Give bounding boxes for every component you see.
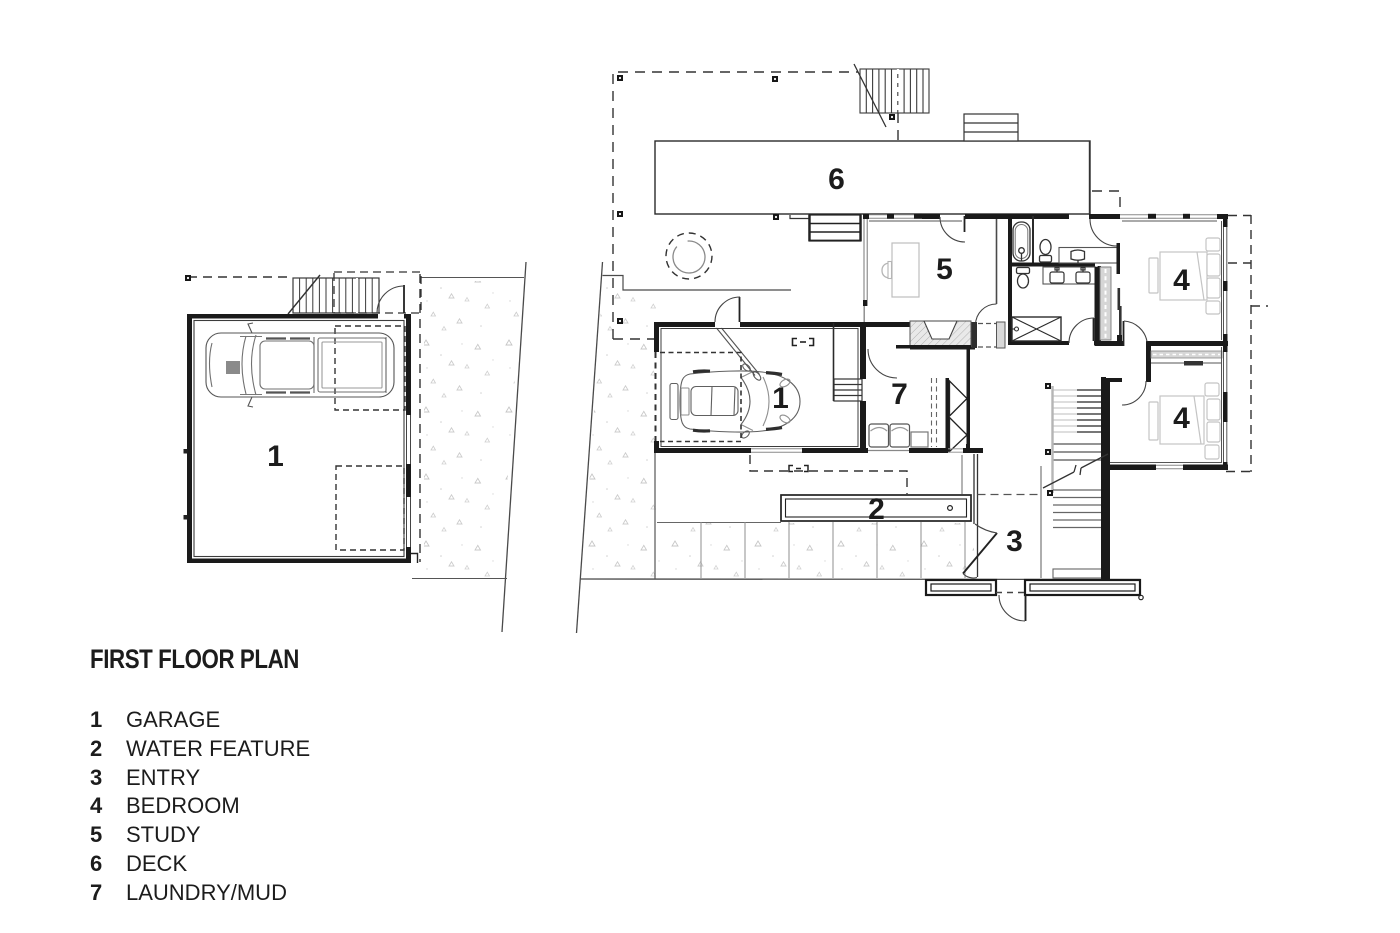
- svg-text:FIRST FLOOR PLAN: FIRST FLOOR PLAN: [90, 644, 299, 674]
- svg-text:6: 6: [828, 163, 844, 196]
- svg-text:2: 2: [868, 493, 884, 526]
- svg-text:6: 6: [90, 851, 102, 876]
- svg-text:1: 1: [772, 382, 788, 415]
- svg-text:DECK: DECK: [126, 851, 187, 876]
- svg-text:4: 4: [1173, 264, 1190, 297]
- svg-text:LAUNDRY/MUD: LAUNDRY/MUD: [126, 880, 287, 905]
- svg-text:3: 3: [1006, 525, 1022, 558]
- svg-text:3: 3: [90, 765, 102, 790]
- svg-text:4: 4: [1173, 402, 1190, 435]
- svg-text:7: 7: [90, 880, 102, 905]
- svg-text:WATER FEATURE: WATER FEATURE: [126, 736, 310, 761]
- svg-text:1: 1: [267, 440, 283, 473]
- svg-text:7: 7: [891, 378, 907, 411]
- svg-text:BEDROOM: BEDROOM: [126, 793, 240, 818]
- svg-text:2: 2: [90, 736, 102, 761]
- svg-text:GARAGE: GARAGE: [126, 707, 220, 732]
- svg-text:STUDY: STUDY: [126, 822, 201, 847]
- svg-text:5: 5: [90, 822, 102, 847]
- svg-text:4: 4: [90, 793, 103, 818]
- svg-text:ENTRY: ENTRY: [126, 765, 200, 790]
- svg-text:1: 1: [90, 707, 102, 732]
- svg-text:5: 5: [936, 253, 952, 286]
